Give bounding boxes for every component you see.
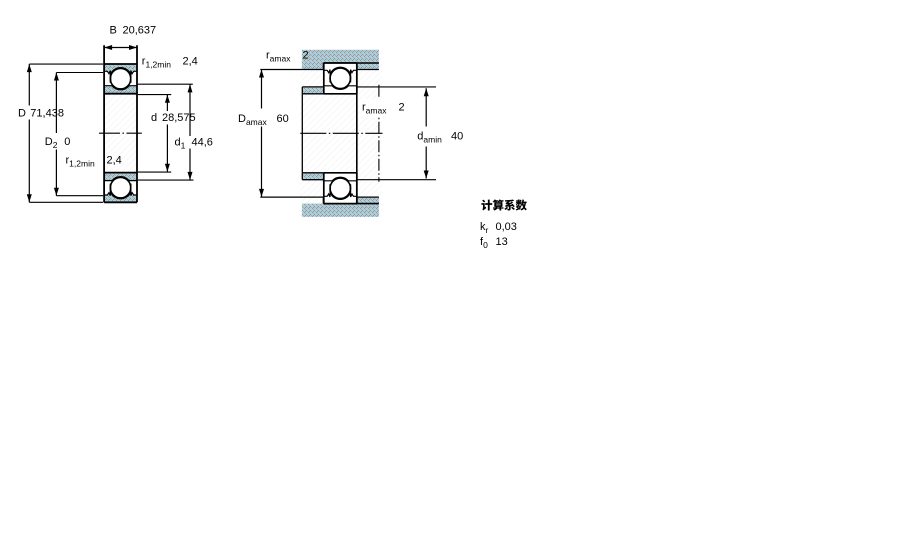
svg-text:ramax2: ramax2 xyxy=(266,49,309,63)
svg-text:r1,2min2,4: r1,2min2,4 xyxy=(66,154,122,168)
svg-text:B20,637: B20,637 xyxy=(110,25,157,37)
svg-text:d28,575: d28,575 xyxy=(151,112,196,124)
svg-text:f013: f013 xyxy=(480,236,508,250)
svg-text:r1,2min2,4: r1,2min2,4 xyxy=(142,55,198,69)
svg-text:kr0,03: kr0,03 xyxy=(480,221,517,235)
svg-text:Damax60: Damax60 xyxy=(238,113,289,127)
svg-text:d144,6: d144,6 xyxy=(175,136,213,150)
svg-text:D20: D20 xyxy=(45,136,71,150)
svg-text:D71,438: D71,438 xyxy=(18,108,64,120)
